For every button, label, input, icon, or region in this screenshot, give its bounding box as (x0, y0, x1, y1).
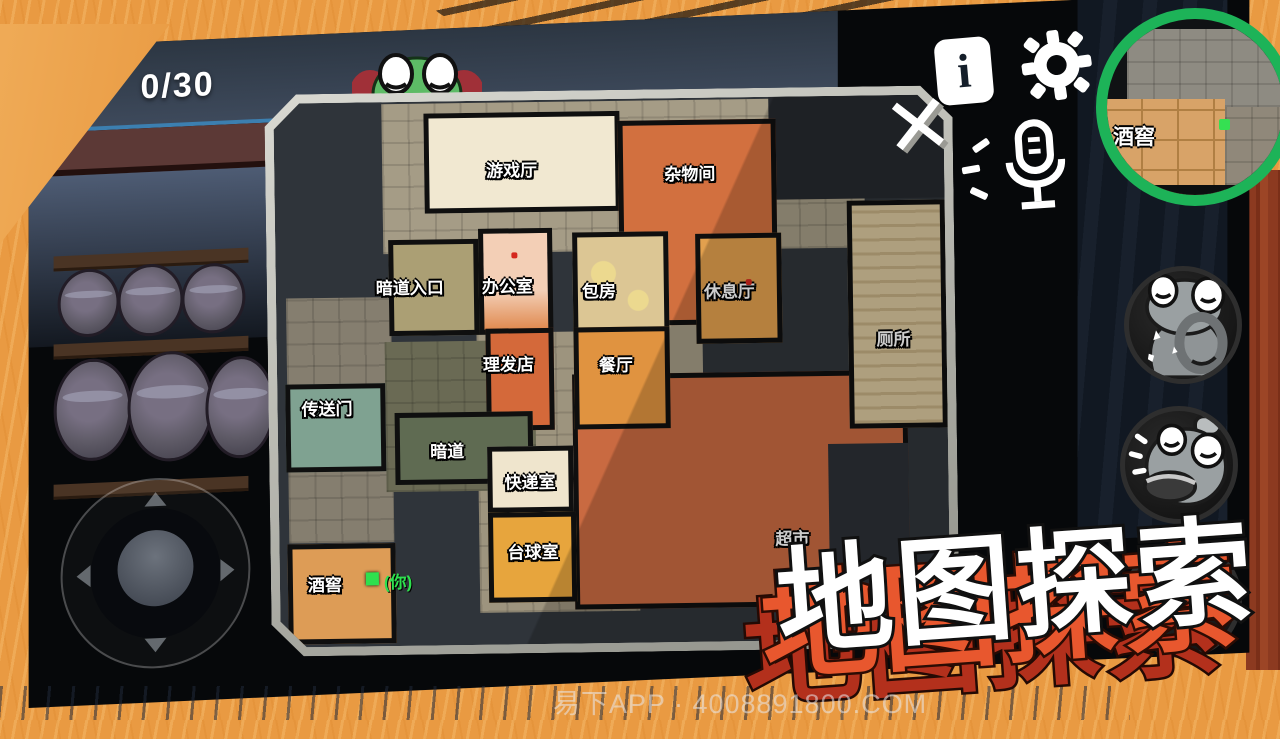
watermark-text: 易下APP · 4008891800.COM (420, 682, 1060, 721)
joystick-arrow-right-icon (220, 559, 234, 582)
minimap-room-label: 酒窖 (1113, 121, 1155, 151)
joystick-arrow-up-icon (145, 492, 167, 507)
room-label-toilet: 厕所 (876, 325, 910, 350)
minimap-tiles (1127, 29, 1280, 107)
room-restaurant (573, 326, 670, 429)
room-label-delivery: 快递室 (504, 468, 555, 494)
info-icon: i (955, 43, 973, 99)
room-label-game-hall: 游戏厅 (486, 156, 537, 182)
room-label-barbershop: 理发店 (483, 350, 534, 376)
minimap-player-dot (1219, 119, 1230, 130)
info-button[interactable]: i (933, 36, 995, 107)
joystick-arrow-down-icon (145, 638, 167, 653)
microphone-icon (996, 116, 1075, 221)
room-label-office: 办公室 (482, 272, 533, 298)
map-marker-dot (746, 279, 752, 285)
minimap-tiles (1225, 107, 1280, 185)
voice-chat-button[interactable] (996, 116, 1075, 226)
room-toilet (847, 199, 948, 428)
map-marker-dot (511, 252, 517, 258)
frog-spyglass-icon (1129, 271, 1237, 379)
gear-icon (1015, 23, 1099, 107)
minimap[interactable]: 酒窖 (1096, 8, 1280, 206)
room-label-restaurant: 餐厅 (599, 351, 633, 376)
player-position-marker (366, 572, 379, 585)
room-label-billiards: 台球室 (507, 538, 558, 564)
player-position-label: (你) (384, 568, 413, 593)
room-label-portal: 传送门 (301, 395, 352, 421)
room-label-wine-cellar: 酒窖 (308, 571, 342, 596)
room-label-private-room: 包房 (582, 277, 616, 302)
settings-button[interactable] (1015, 23, 1099, 112)
room-label-secret-passage: 暗道 (430, 437, 464, 462)
frog-ability-button-1[interactable] (1124, 266, 1242, 384)
room-label-secret-entrance: 暗道入口 (376, 273, 444, 299)
wine-barrel-rack (54, 248, 249, 507)
room-label-storage: 杂物间 (664, 160, 715, 186)
joystick-arrow-left-icon (77, 565, 91, 588)
task-counter: 0/30 (141, 65, 215, 107)
